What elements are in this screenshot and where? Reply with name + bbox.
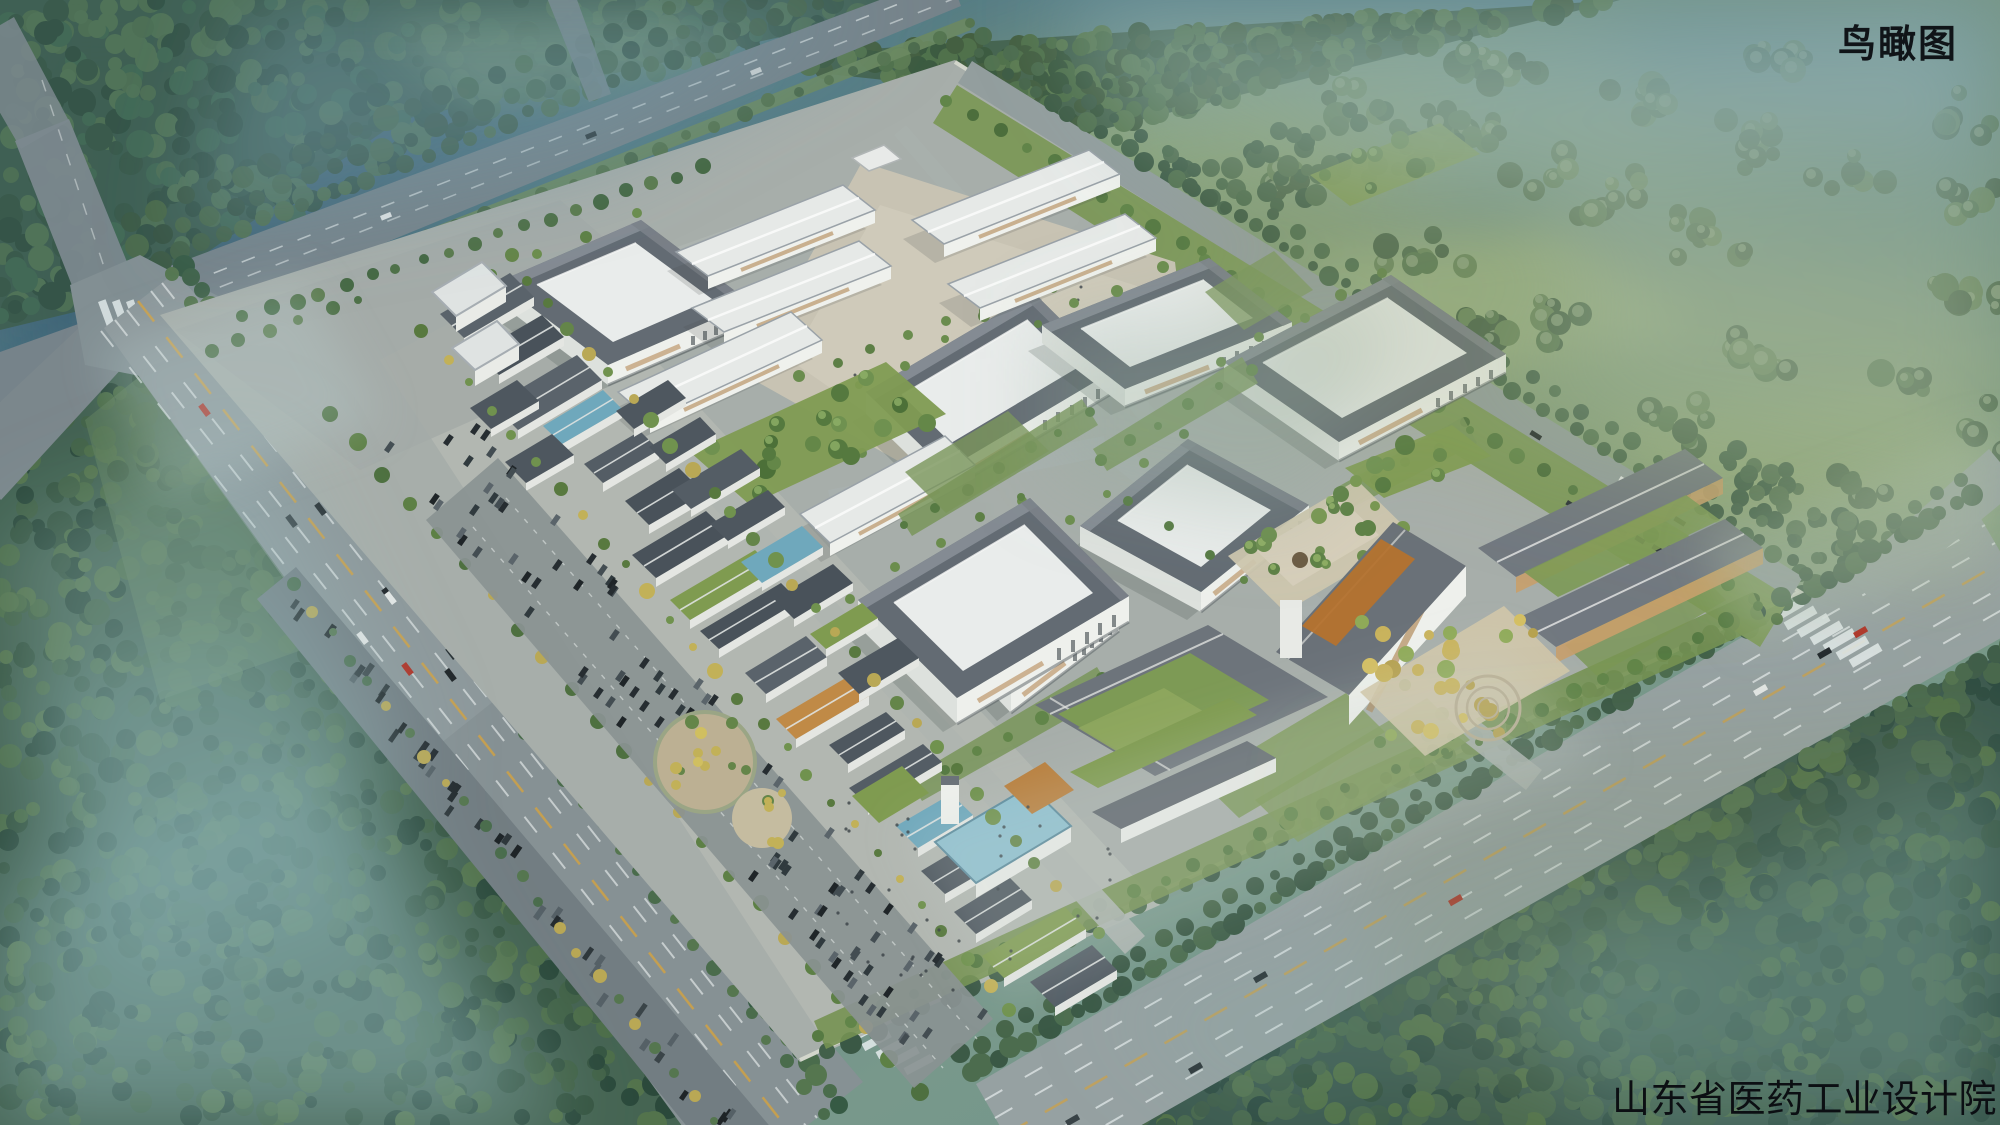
svg-text:鸟瞰图: 鸟瞰图 [1838,24,1958,66]
svg-text:山东省医药工业设计院: 山东省医药工业设计院 [1612,1079,1997,1121]
